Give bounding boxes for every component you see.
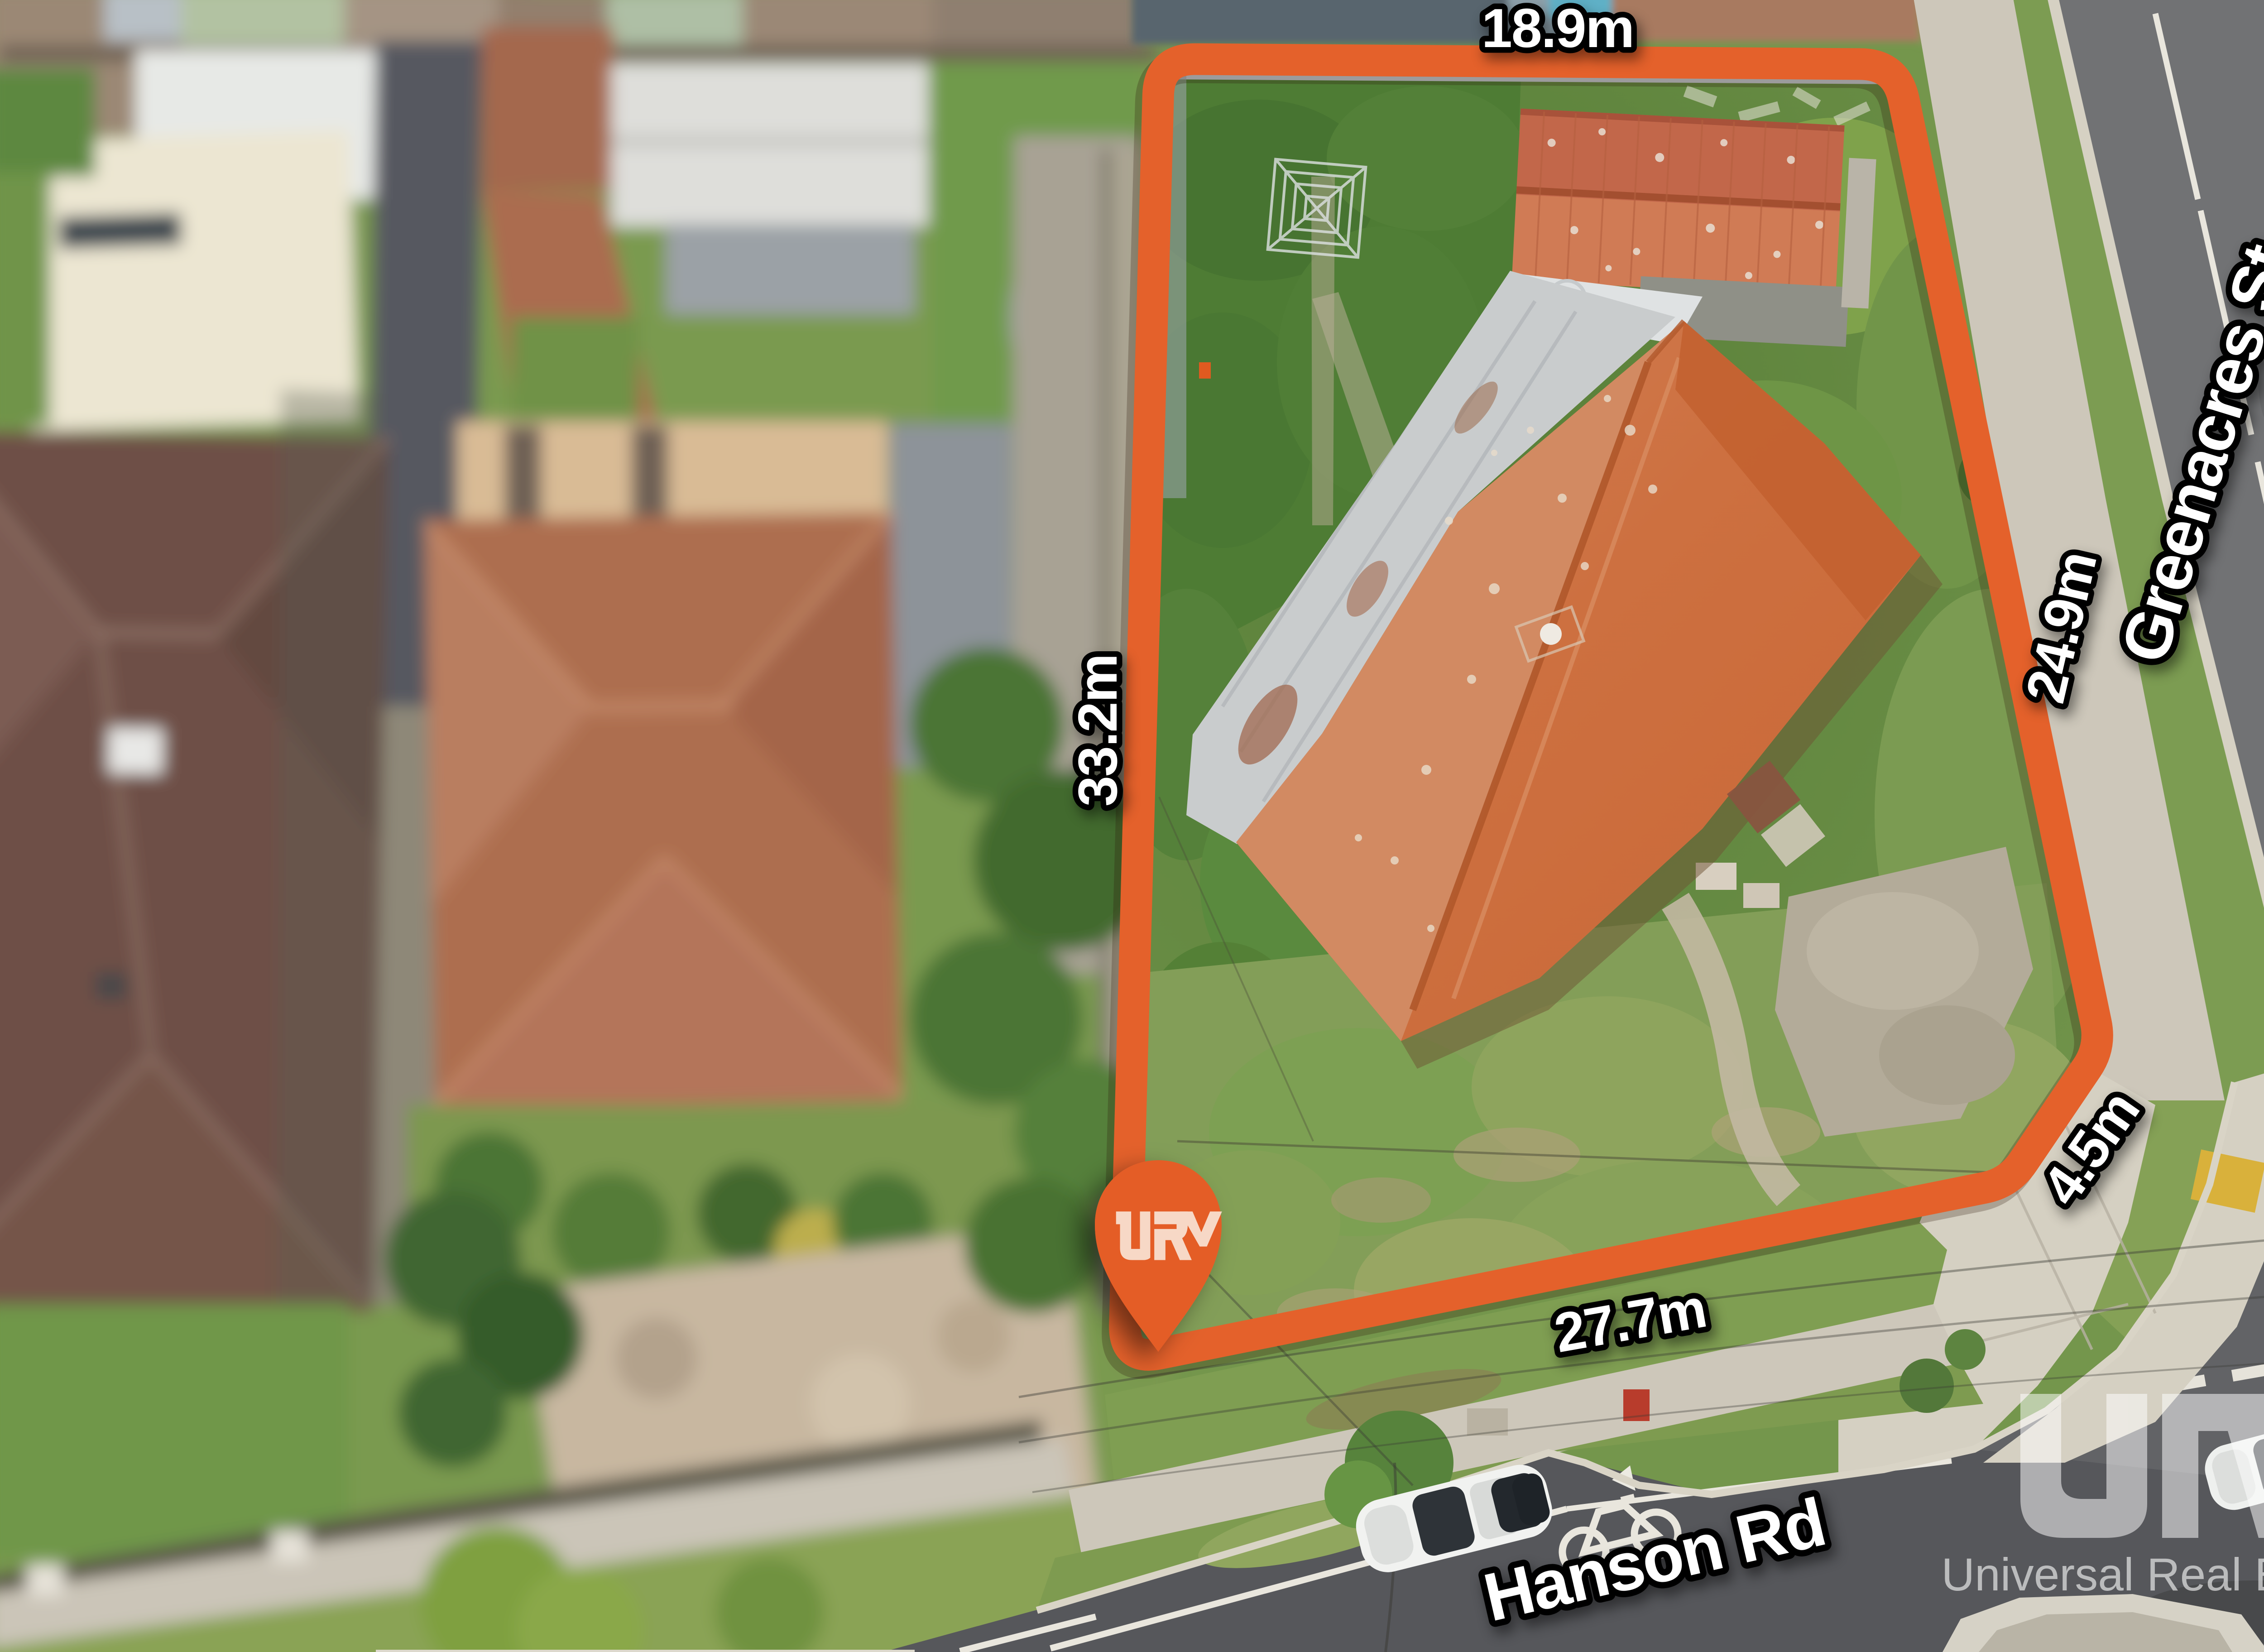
svg-text:18.9m: 18.9m bbox=[1482, 0, 1634, 59]
svg-text:Universal Real Estate Vic: Universal Real Estate Vic bbox=[1942, 1549, 2264, 1600]
svg-text:33.2m: 33.2m bbox=[1067, 654, 1128, 807]
